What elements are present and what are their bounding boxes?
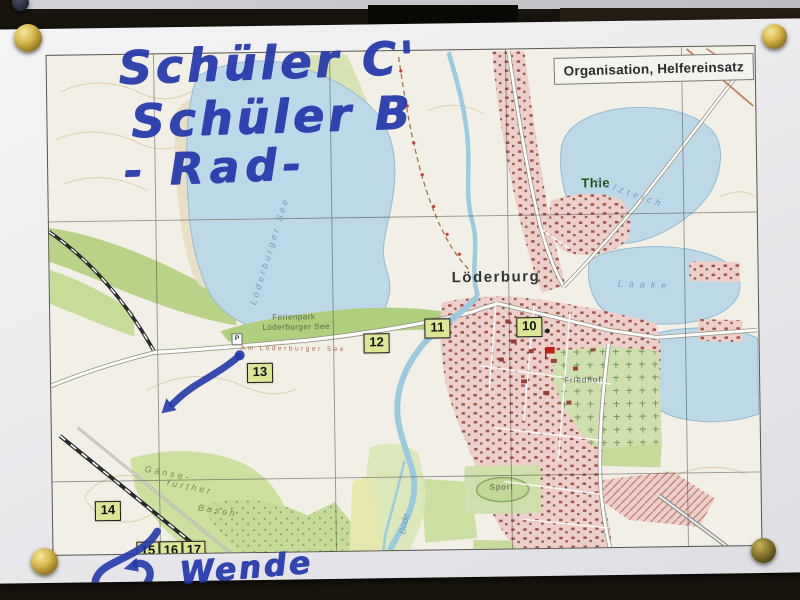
push-pin-top-left bbox=[14, 24, 42, 52]
urban-patch bbox=[689, 260, 739, 283]
arrowhead bbox=[124, 558, 139, 572]
label-street: Am Löderburger See bbox=[241, 345, 346, 353]
map-marker-17: 17 bbox=[182, 541, 205, 555]
push-pin-bottom-right bbox=[751, 538, 776, 563]
push-pin-upper-sheet bbox=[12, 0, 29, 11]
map-marker-12: 12 bbox=[363, 333, 389, 353]
map-title-text: Organisation, Helfereinsatz bbox=[564, 59, 745, 78]
town-label-loederburg: Löderburg bbox=[452, 268, 541, 286]
push-pin-bottom-left bbox=[31, 548, 58, 575]
map-marker-14: 14 bbox=[95, 501, 121, 521]
photo-scene: Organisation, Helfereinsatz Löderburg Th… bbox=[0, 0, 800, 600]
handwriting-rad: - Rad- bbox=[123, 139, 308, 197]
label-laake: Laake bbox=[618, 279, 673, 291]
paper-sheet: Organisation, Helfereinsatz Löderburg Th… bbox=[0, 18, 800, 583]
map-marker-13: 13 bbox=[247, 363, 273, 383]
label-ferienpark-2: Löderburger See bbox=[262, 322, 330, 332]
push-pin-top-right bbox=[762, 24, 787, 49]
handwriting-schueler-c: Schüler C' bbox=[118, 31, 419, 95]
map-marker-16: 16 bbox=[159, 541, 182, 555]
handwriting-schueler-b: Schüler B bbox=[131, 85, 415, 148]
map-marker-15: 15 bbox=[136, 541, 159, 554]
map-marker-10: 10 bbox=[516, 317, 542, 337]
map-marker-11: 11 bbox=[424, 318, 450, 338]
map-title-box: Organisation, Helfereinsatz bbox=[553, 53, 754, 85]
label-sport: Sport bbox=[490, 482, 514, 491]
label-ferienpark-1: Ferienpark bbox=[272, 312, 315, 322]
town-southeast-hatched bbox=[600, 471, 715, 529]
label-friedhof: Friedhof bbox=[564, 375, 601, 385]
parking-icon: P bbox=[231, 333, 242, 345]
